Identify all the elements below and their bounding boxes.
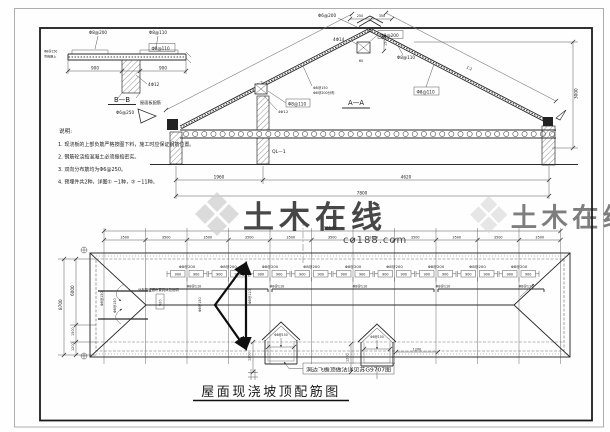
section-height-dim: 3000 xyxy=(574,88,579,99)
rebar-extent-right: 900 xyxy=(276,273,282,277)
ridge-dim-v: 150 xyxy=(384,40,388,46)
section-dim-total: 7800 xyxy=(357,191,368,196)
rebar-extent-left: 900 xyxy=(299,273,305,277)
bay-dim-label: 3500 xyxy=(494,236,503,240)
hollow-core-circles xyxy=(183,131,554,136)
note-item-4: 4. 预埋件共2种，详图① ~1种，② ~11种。 xyxy=(58,179,158,186)
rebar-top-label: Φ8@200 xyxy=(303,264,320,269)
left-dim-total: 8700 xyxy=(58,299,63,310)
rebar-extent-left: 900 xyxy=(382,273,388,277)
bb-label-left-1: Φ8@150 xyxy=(44,50,57,54)
distribution-labels: Φ8@110Φ8@110Φ8@110Φ8@110Φ8@110 xyxy=(187,285,534,289)
rebar-extent-right: 900 xyxy=(442,273,448,277)
rebar-extent-right: 900 xyxy=(193,273,199,277)
rebar-top-label: Φ8@200 xyxy=(345,264,362,269)
slope-right-label: Φ8@110 xyxy=(397,55,415,60)
dormer1-dim-1200: 1200 xyxy=(248,352,252,361)
axis-mark-bottom xyxy=(81,353,87,359)
rebar-top-label: Φ8@200 xyxy=(428,264,445,269)
beam-ql1-label: QL—1 xyxy=(272,149,286,155)
ridge-dim-a: 250 xyxy=(357,14,363,18)
watermark-partial: 土木在线 xyxy=(470,196,610,234)
hip-rebar-2: Φ8@150 xyxy=(113,298,117,313)
watermark-site: co188.com xyxy=(343,235,407,246)
bay-dim-label: 3500 xyxy=(286,236,295,240)
left-dim-1500: 1500 xyxy=(71,327,75,336)
bb-labels: Φ8@200 Φ8@110 Φ8@110 Φ8@150 弯钩朝上 4Φ12 xyxy=(44,30,175,87)
eave-rebar-label: Φ6@250 xyxy=(116,110,134,115)
bb-subtitle-text: 屋面板配筋 xyxy=(140,99,161,106)
rebar-top-label: Φ8@200 xyxy=(220,264,237,269)
dormer2-label: Φ8@150 xyxy=(370,335,383,339)
bb-dim-left: 900 xyxy=(91,66,99,71)
plan-box-900: 900 xyxy=(159,300,163,306)
dormer1-label: Φ8@150 xyxy=(274,333,287,337)
bb-label-top-right: Φ8@110 xyxy=(149,30,167,35)
callout-text: 洞边飞檐顶做法详见苏G9707图 xyxy=(306,365,391,373)
bb-title-text: B—B xyxy=(114,96,130,104)
drawing-canvas: Φ8@200 900 900 xyxy=(0,0,610,432)
cad-sheet: Φ8@200 900 900 xyxy=(0,0,610,432)
dist-rebar-label: Φ8@110 xyxy=(436,285,451,289)
rebar-extent-left: 900 xyxy=(507,273,513,277)
note-item-2: 2. 钢筋砼浇捣混凝土必须振捣密实。 xyxy=(58,154,139,161)
rebar-extent-left: 900 xyxy=(424,273,430,277)
section-ceiling-slab xyxy=(180,130,556,138)
rebar-top-label: Φ8@200 xyxy=(469,264,486,269)
rebar-extent-left: 900 xyxy=(258,273,264,277)
rebar-extent-left: 900 xyxy=(216,273,222,277)
callout: 洞边飞檐顶做法详见苏G9707图 xyxy=(284,362,394,374)
watermark-brand-2: 土木在线 xyxy=(511,204,610,234)
left-dim-1200: 1200 xyxy=(71,342,75,351)
dist-rebar-label: Φ8@110 xyxy=(187,285,202,289)
section-dim-seg1: 1960 xyxy=(214,175,225,180)
rebar-extent-right: 900 xyxy=(525,273,531,277)
bb-title: B—B 屋面板配筋 xyxy=(108,96,161,106)
section-title: A—A xyxy=(342,99,370,108)
section-aa: 1:2 1:2 250 350 150 60 Φ6@200 4Φ14 Φ8@20… xyxy=(116,11,579,199)
rebar-extent-left: 900 xyxy=(175,273,181,277)
slope-left-label-1: Φ8@150 xyxy=(313,86,328,90)
drawing-title: 屋面现浇坡顶配筋图 xyxy=(201,384,341,400)
distribution-bars xyxy=(98,289,544,319)
bb-label-top-left: Φ8@200 xyxy=(89,30,107,35)
bb-dim-right: 900 xyxy=(159,66,167,71)
bay-dim-label: 3500 xyxy=(452,236,461,240)
rebar-extent-right: 900 xyxy=(359,273,365,277)
slope-left-label-2: Φ6@200分布 xyxy=(313,90,335,95)
slope-mark-right: 1:2 xyxy=(466,64,474,71)
section-walls xyxy=(150,84,578,165)
bay-dimension-labels: 3500350035003500350035003500350035003500… xyxy=(120,236,544,240)
bb-detail: 900 900 Φ8@200 Φ8@110 Φ8@110 Φ8@150 弯钩朝上… xyxy=(44,30,191,106)
ridge-boxed-label: Φ8@200 xyxy=(381,33,399,38)
purlin-label: 4Φ12 xyxy=(278,109,289,114)
rebar-top-label: Φ8@200 xyxy=(386,264,403,269)
ridge-main-label: 4Φ14 xyxy=(333,37,345,42)
plan-rot-label-2: Φ8@110 xyxy=(248,289,252,304)
section-labels: Φ6@250 QL—1 Φ8@110 4Φ12 Φ8@150 Φ6@200分布 … xyxy=(116,46,439,155)
rebar-extent-left: 900 xyxy=(341,273,347,277)
plan-small-note: 分布筋连通布置具体见说明 xyxy=(138,287,179,292)
rebar-top-label: Φ8@200 xyxy=(511,264,528,269)
title-block: 屋面现浇坡顶配筋图 xyxy=(193,384,349,401)
rebar-extent-left: 900 xyxy=(465,273,471,277)
watermark-main: 土木在线 co188.com xyxy=(195,192,407,246)
bb-beam xyxy=(118,60,140,98)
bay-dim-label: 3500 xyxy=(245,236,254,240)
rebar-extent-right: 900 xyxy=(317,273,323,277)
purlin-boxed-label: Φ8@110 xyxy=(288,101,306,106)
bay-dim-label: 3500 xyxy=(535,236,544,240)
bb-label-left-2: 弯钩朝上 xyxy=(44,54,56,59)
rebar-extent-right: 900 xyxy=(483,273,489,277)
slope-right-boxed-label: Φ8@110 xyxy=(417,89,435,94)
section-title-text: A—A xyxy=(348,99,364,107)
dormer2-ext-dim: 1200 xyxy=(413,348,422,352)
note-item-3: 3. 双向分布筋均为Φ6@250。 xyxy=(58,166,126,173)
ridge-dim-w: 60 xyxy=(359,59,363,63)
plan-rotated-labels: Φ8@150 Φ8@150 Φ8@150 Φ8@110 900 分布筋连通布置具… xyxy=(100,284,252,324)
rebar-extent-right: 900 xyxy=(400,273,406,277)
axis-mark-top xyxy=(81,247,87,253)
section-dim-seg2: 4620 xyxy=(401,175,412,180)
bay-dim-label: 3500 xyxy=(203,236,212,240)
dormer2-dim-1200: 1200 xyxy=(346,353,350,362)
section-dimensions: 3000 1960 4620 7800 xyxy=(174,40,579,199)
notes-heading: 说明: xyxy=(59,127,72,135)
hip-rebar-1: Φ8@150 xyxy=(100,291,104,306)
watermark: 土木在线 co188.com 土木在线 xyxy=(195,192,610,246)
bay-dim-label: 3500 xyxy=(120,236,129,240)
bb-label-beam: 4Φ12 xyxy=(148,82,160,87)
bay-dim-label: 3500 xyxy=(411,236,420,240)
ridge-stirrup-label: Φ6@200 xyxy=(318,13,336,18)
roof-plan: 38500 3500350035003500350035003500350035… xyxy=(58,219,570,380)
plan-rot-label-1: Φ8@150 xyxy=(198,297,202,312)
rebar-top-label: Φ8@200 xyxy=(262,264,279,269)
bay-dim-label: 3500 xyxy=(162,236,171,240)
left-dim-6000: 6000 xyxy=(70,285,75,296)
watermark-logo xyxy=(195,192,239,236)
bay-dim-label: 3500 xyxy=(328,236,337,240)
watermark-brand: 土木在线 xyxy=(243,200,387,236)
ridge-dim-b: 350 xyxy=(379,14,385,18)
bb-label-boxed: Φ8@110 xyxy=(152,46,170,51)
dist-rebar-label: Φ8@110 xyxy=(353,285,368,289)
dist-rebar-label: Φ8@110 xyxy=(270,285,285,289)
dist-rebar-label: Φ8@110 xyxy=(519,285,534,289)
rebar-top-label: Φ8@200 xyxy=(179,264,196,269)
grid-lines xyxy=(102,228,563,364)
